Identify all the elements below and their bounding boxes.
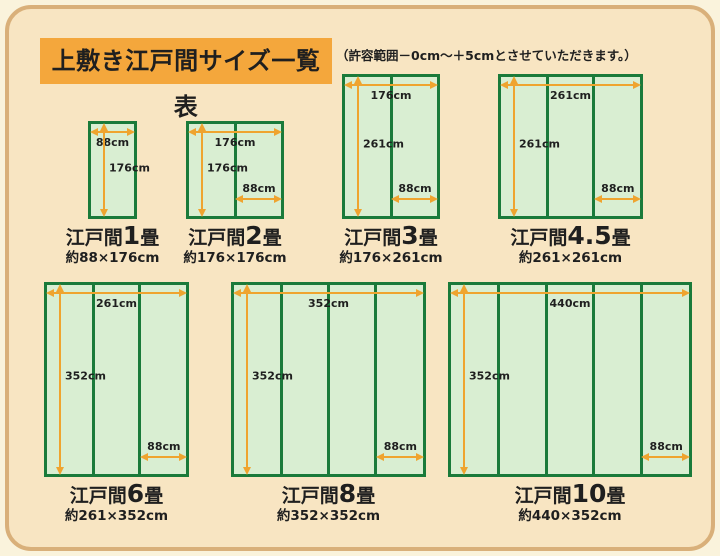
arrowhead-left-icon <box>90 128 98 136</box>
panel-width-arrow <box>237 198 280 200</box>
arrowhead-right-icon <box>682 453 690 461</box>
width-arrow <box>190 131 280 133</box>
mat-caption: 江戸間3畳約176×261cm <box>339 224 442 267</box>
width-dimension-label: 88cm <box>96 136 129 149</box>
arrowhead-down-icon <box>510 209 518 217</box>
arrowhead-left-icon <box>46 289 54 297</box>
mat-size-label: 約176×261cm <box>339 250 442 267</box>
arrowhead-up-icon <box>198 123 206 131</box>
panel-width-arrow <box>596 198 639 200</box>
mat-caption: 江戸間10畳約440×352cm <box>515 482 626 525</box>
width-dimension-label: 261cm <box>96 297 137 310</box>
panel-width-arrow <box>643 456 688 458</box>
arrowhead-down-icon <box>243 467 251 475</box>
arrowhead-right-icon <box>416 289 424 297</box>
mat-diagram-edoma-6: 261cm352cm88cm <box>44 282 189 477</box>
arrowhead-down-icon <box>460 467 468 475</box>
height-dimension-label: 176cm <box>207 162 248 175</box>
mat-caption: 江戸間2畳約176×176cm <box>183 224 286 267</box>
mat-name-label: 江戸間6畳 <box>65 482 168 508</box>
height-arrow <box>246 286 248 473</box>
mat-caption: 江戸間6畳約261×352cm <box>65 482 168 525</box>
mat-name-label: 江戸間8畳 <box>277 482 380 508</box>
mat-diagram-edoma-4.5: 261cm261cm88cm <box>498 74 643 219</box>
arrowhead-left-icon <box>376 453 384 461</box>
arrowhead-up-icon <box>510 76 518 84</box>
width-arrow <box>92 131 133 133</box>
width-dimension-label: 352cm <box>308 297 349 310</box>
arrowhead-up-icon <box>100 123 108 131</box>
panel-width-arrow <box>142 456 185 458</box>
arrowhead-left-icon <box>235 195 243 203</box>
panel-width-arrow <box>378 456 422 458</box>
mat-caption: 江戸間4.5畳約261×261cm <box>510 224 630 267</box>
mat-panel-divider <box>138 285 141 474</box>
arrowhead-right-icon <box>633 81 641 89</box>
width-arrow <box>346 84 436 86</box>
arrowhead-left-icon <box>500 81 508 89</box>
mat-panel-divider <box>327 285 330 474</box>
mat-size-label: 約261×352cm <box>65 508 168 525</box>
page-title: 上敷き江戸間サイズ一覧表 <box>40 38 332 84</box>
arrowhead-left-icon <box>233 289 241 297</box>
arrowhead-right-icon <box>430 81 438 89</box>
width-arrow <box>235 292 422 294</box>
mat-size-label: 約88×176cm <box>66 250 160 267</box>
arrowhead-up-icon <box>56 284 64 292</box>
width-arrow <box>48 292 185 294</box>
mat-diagram-edoma-10: 440cm352cm88cm <box>448 282 692 477</box>
panel-width-dimension-label: 88cm <box>242 182 275 195</box>
mat-panel-divider <box>374 285 377 474</box>
height-arrow <box>357 78 359 215</box>
mat-panel-divider <box>592 285 595 474</box>
panel-width-dimension-label: 88cm <box>650 440 683 453</box>
panel-width-arrow <box>393 198 436 200</box>
mat-panel-divider <box>640 285 643 474</box>
width-arrow <box>502 84 639 86</box>
height-arrow <box>463 286 465 473</box>
mat-name-label: 江戸間3畳 <box>339 224 442 250</box>
mat-name-label: 江戸間4.5畳 <box>510 224 630 250</box>
width-dimension-label: 176cm <box>371 89 412 102</box>
height-arrow <box>59 286 61 473</box>
arrowhead-left-icon <box>450 289 458 297</box>
arrowhead-left-icon <box>344 81 352 89</box>
arrowhead-up-icon <box>243 284 251 292</box>
mat-caption: 江戸間1畳約88×176cm <box>66 224 160 267</box>
panel-width-dimension-label: 88cm <box>147 440 180 453</box>
mat-panel-divider <box>545 285 548 474</box>
mat-name-label: 江戸間1畳 <box>66 224 160 250</box>
arrowhead-right-icon <box>179 289 187 297</box>
height-arrow <box>201 125 203 215</box>
width-dimension-label: 176cm <box>215 136 256 149</box>
arrowhead-down-icon <box>198 209 206 217</box>
arrowhead-right-icon <box>430 195 438 203</box>
arrowhead-down-icon <box>56 467 64 475</box>
arrowhead-right-icon <box>127 128 135 136</box>
arrowhead-right-icon <box>682 289 690 297</box>
arrowhead-down-icon <box>354 209 362 217</box>
arrowhead-left-icon <box>641 453 649 461</box>
panel-width-dimension-label: 88cm <box>398 182 431 195</box>
height-arrow <box>513 78 515 215</box>
panel-width-dimension-label: 88cm <box>601 182 634 195</box>
height-dimension-label: 352cm <box>252 369 293 382</box>
mat-name-label: 江戸間2畳 <box>183 224 286 250</box>
arrowhead-right-icon <box>179 453 187 461</box>
tolerance-note: （許容範囲－0cm～＋5cmとさせていただきます。） <box>336 45 637 64</box>
width-dimension-label: 440cm <box>550 297 591 310</box>
arrowhead-right-icon <box>274 128 282 136</box>
panel-width-dimension-label: 88cm <box>384 440 417 453</box>
height-dimension-label: 176cm <box>109 162 150 175</box>
height-dimension-label: 352cm <box>65 369 106 382</box>
mat-diagram-edoma-8: 352cm352cm88cm <box>231 282 426 477</box>
mat-diagram-edoma-2: 176cm176cm88cm <box>186 121 284 219</box>
mat-size-label: 約352×352cm <box>277 508 380 525</box>
height-arrow <box>103 125 105 215</box>
arrowhead-left-icon <box>140 453 148 461</box>
arrowhead-right-icon <box>633 195 641 203</box>
arrowhead-right-icon <box>274 195 282 203</box>
arrowhead-left-icon <box>391 195 399 203</box>
mat-size-label: 約176×176cm <box>183 250 286 267</box>
height-dimension-label: 261cm <box>363 137 404 150</box>
mat-size-label: 約440×352cm <box>515 508 626 525</box>
arrowhead-left-icon <box>188 128 196 136</box>
arrowhead-left-icon <box>594 195 602 203</box>
width-arrow <box>452 292 688 294</box>
mat-caption: 江戸間8畳約352×352cm <box>277 482 380 525</box>
height-dimension-label: 261cm <box>519 137 560 150</box>
mat-diagram-edoma-3: 176cm261cm88cm <box>342 74 440 219</box>
height-dimension-label: 352cm <box>469 369 510 382</box>
mat-name-label: 江戸間10畳 <box>515 482 626 508</box>
arrowhead-up-icon <box>460 284 468 292</box>
mat-size-label: 約261×261cm <box>510 250 630 267</box>
arrowhead-right-icon <box>416 453 424 461</box>
arrowhead-up-icon <box>354 76 362 84</box>
mat-diagram-edoma-1: 88cm176cm <box>88 121 137 219</box>
width-dimension-label: 261cm <box>550 89 591 102</box>
size-chart-canvas: 上敷き江戸間サイズ一覧表 （許容範囲－0cm～＋5cmとさせていただきます。） … <box>0 0 720 556</box>
arrowhead-down-icon <box>100 209 108 217</box>
